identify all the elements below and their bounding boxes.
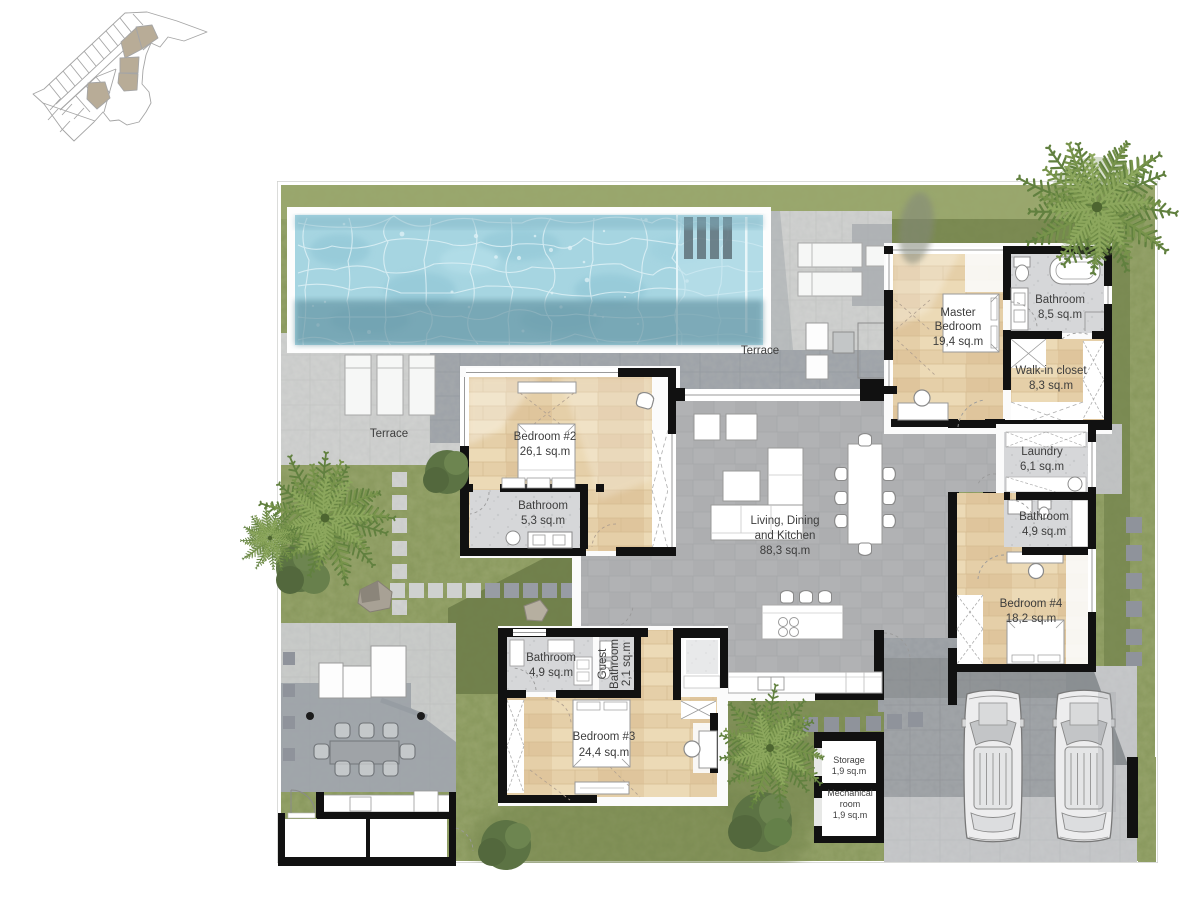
svg-text:1,9 sq.m: 1,9 sq.m [833,810,868,820]
svg-text:2,1 sq.m: 2,1 sq.m [621,642,633,686]
svg-text:Bedroom #3: Bedroom #3 [573,731,636,743]
svg-text:Mechanical: Mechanical [827,788,873,798]
svg-text:6,1 sq.m: 6,1 sq.m [1020,461,1064,473]
svg-text:room: room [840,799,861,809]
svg-text:88,3 sq.m: 88,3 sq.m [760,545,811,557]
svg-text:Guest: Guest [597,648,609,679]
svg-text:4,9 sq.m: 4,9 sq.m [1022,526,1066,538]
svg-text:Bathroom: Bathroom [1019,511,1069,523]
svg-text:5,3 sq.m: 5,3 sq.m [521,515,565,527]
svg-text:18,2 sq.m: 18,2 sq.m [1006,613,1057,625]
svg-text:24,4 sq.m: 24,4 sq.m [579,747,630,759]
svg-text:8,3 sq.m: 8,3 sq.m [1029,380,1073,392]
svg-text:and Kitchen: and Kitchen [755,530,816,542]
svg-text:Master: Master [940,307,975,319]
svg-text:Terrace: Terrace [370,428,408,440]
svg-text:Walk-in closet: Walk-in closet [1015,365,1087,377]
svg-text:8,5 sq.m: 8,5 sq.m [1038,309,1082,321]
svg-text:Laundry: Laundry [1021,446,1063,458]
svg-text:Living, Dining: Living, Dining [750,515,819,527]
svg-text:Bedroom: Bedroom [935,321,982,333]
svg-text:Terrace: Terrace [741,345,779,357]
svg-text:Bathroom: Bathroom [526,652,576,664]
svg-text:Bathroom: Bathroom [518,500,568,512]
svg-text:Bathroom: Bathroom [609,639,621,689]
svg-text:19,4 sq.m: 19,4 sq.m [933,336,984,348]
svg-text:1,9 sq.m: 1,9 sq.m [832,766,867,776]
svg-text:Bedroom #4: Bedroom #4 [1000,598,1063,610]
svg-text:26,1 sq.m: 26,1 sq.m [520,446,571,458]
svg-text:Bedroom #2: Bedroom #2 [514,431,577,443]
svg-text:4,9 sq.m: 4,9 sq.m [529,667,573,679]
svg-text:Bathroom: Bathroom [1035,294,1085,306]
svg-text:Storage: Storage [833,755,865,765]
